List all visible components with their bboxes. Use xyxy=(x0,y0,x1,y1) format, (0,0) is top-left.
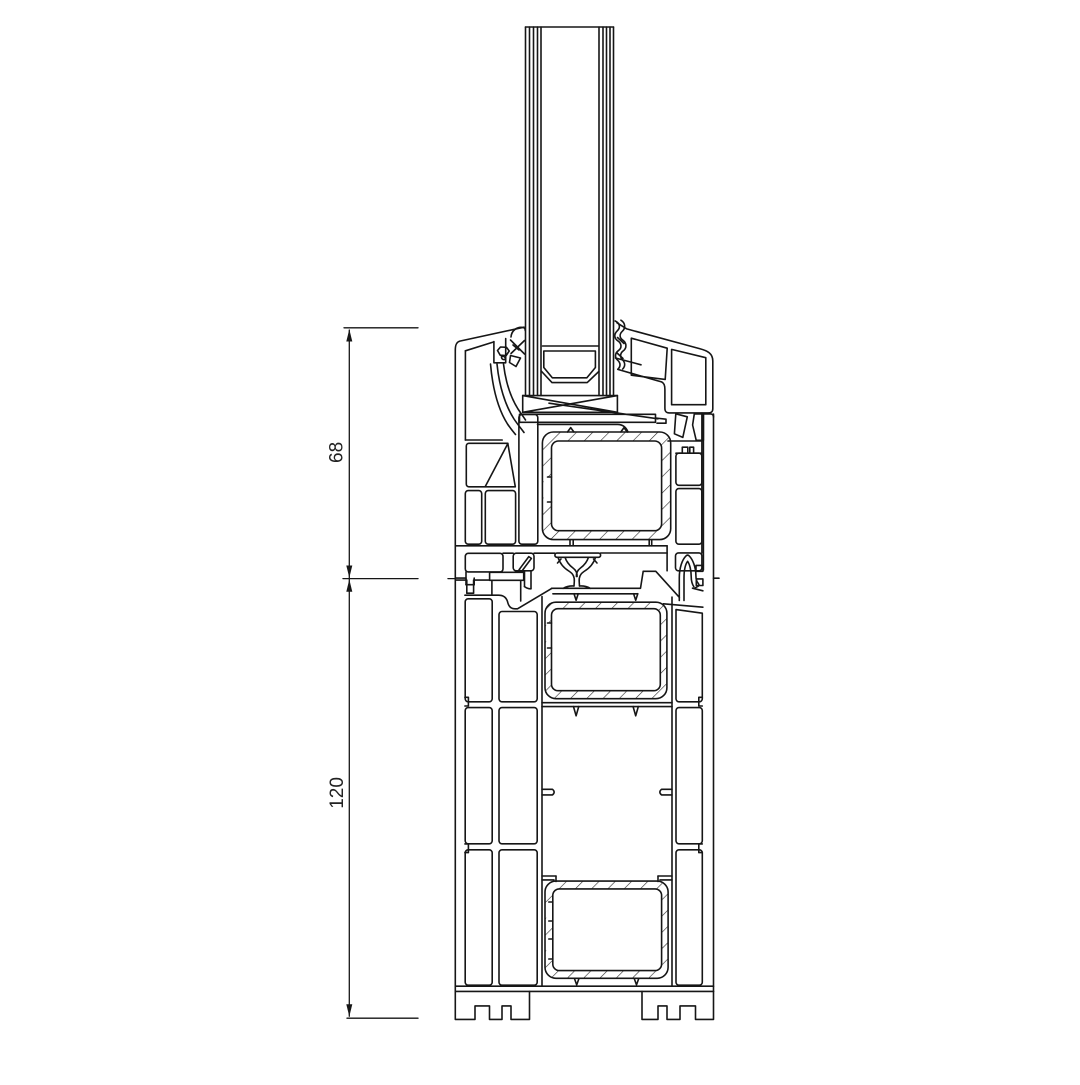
svg-text:68: 68 xyxy=(327,442,348,463)
svg-text:120: 120 xyxy=(327,777,348,809)
